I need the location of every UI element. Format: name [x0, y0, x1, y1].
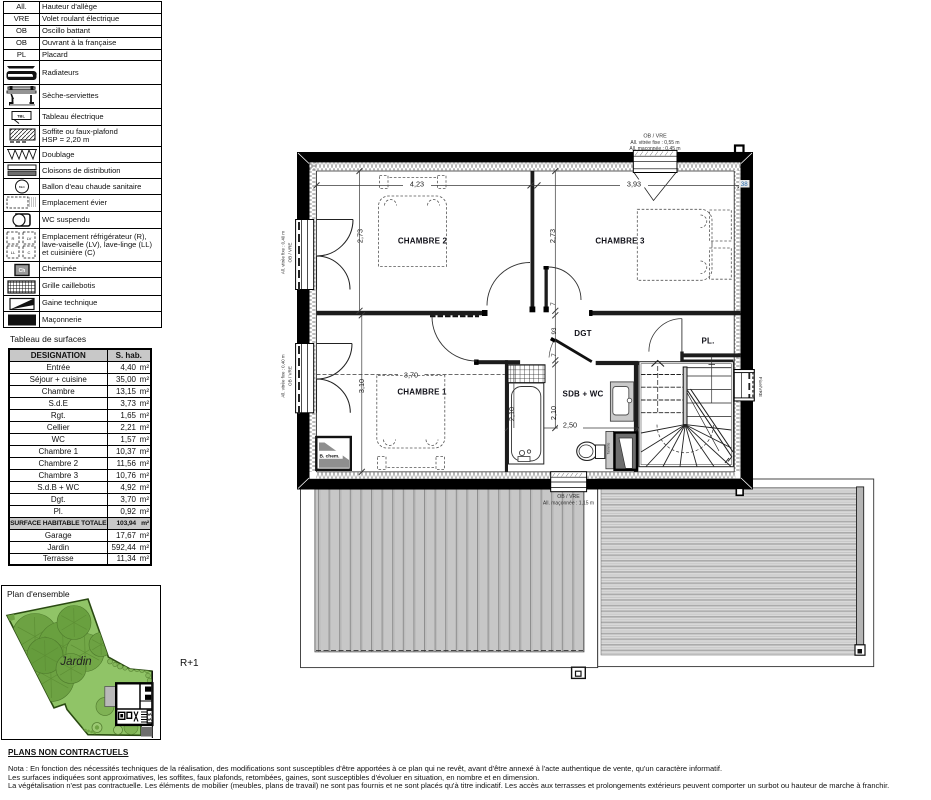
svg-text:All. maçonnée : 1,15 m: All. maçonnée : 1,15 m [543, 500, 594, 506]
svg-text:All. maçonnée : 0,45 m: All. maçonnée : 0,45 m [629, 146, 680, 152]
svg-text:38: 38 [741, 181, 748, 188]
svg-text:OB / VRE: OB / VRE [288, 366, 293, 386]
svg-text:B. chem.: B. chem. [320, 454, 340, 460]
svg-text:Tablette: Tablette [607, 442, 611, 454]
svg-text:Fixe/VRE: Fixe/VRE [757, 377, 763, 397]
svg-text:7: 7 [551, 302, 557, 306]
svg-text:OB / VRE: OB / VRE [288, 243, 293, 263]
svg-text:R: R [11, 236, 14, 241]
svg-text:All. vitrée fixe : 0,55 m: All. vitrée fixe : 0,55 m [630, 140, 679, 146]
svg-text:Jardin: Jardin [59, 656, 91, 668]
svg-text:BEC: BEC [18, 185, 25, 189]
svg-text:2,73: 2,73 [356, 229, 365, 243]
svg-text:LV: LV [26, 236, 31, 241]
svg-text:Ch: Ch [18, 268, 25, 274]
svg-text:SDB + WC: SDB + WC [563, 390, 604, 399]
svg-text:CHAMBRE 1: CHAMBRE 1 [397, 388, 447, 397]
svg-text:2,10: 2,10 [549, 406, 558, 420]
svg-text:OB / VRE: OB / VRE [557, 494, 580, 500]
svg-text:2,50: 2,50 [563, 420, 577, 429]
svg-text:OB / VRE: OB / VRE [643, 134, 667, 140]
svg-text:93: 93 [551, 327, 558, 334]
svg-text:2,10: 2,10 [507, 407, 516, 421]
svg-text:CHAMBRE 2: CHAMBRE 2 [398, 237, 448, 246]
svg-text:3,93: 3,93 [627, 180, 641, 189]
svg-text:All. vitrée fixe : 0,40 m: All. vitrée fixe : 0,40 m [281, 231, 286, 275]
svg-text:4,23: 4,23 [410, 180, 424, 189]
svg-text:2,73: 2,73 [548, 229, 557, 243]
svg-text:C: C [27, 250, 30, 255]
svg-text:TBL: TBL [17, 113, 25, 118]
svg-text:All. vitrée fixe : 0,40 m: All. vitrée fixe : 0,40 m [281, 354, 286, 398]
svg-text:3,70: 3,70 [404, 370, 418, 379]
svg-text:DGT: DGT [574, 329, 592, 338]
svg-text:3,10: 3,10 [357, 379, 366, 393]
svg-text:All. maçonnée : 0,70 m: All. maçonnée : 0,70 m [280, 353, 281, 398]
svg-text:LL: LL [10, 250, 15, 255]
svg-text:All. maçonnée : 0,70 m: All. maçonnée : 0,70 m [280, 230, 281, 275]
svg-text:PL.: PL. [701, 337, 714, 346]
